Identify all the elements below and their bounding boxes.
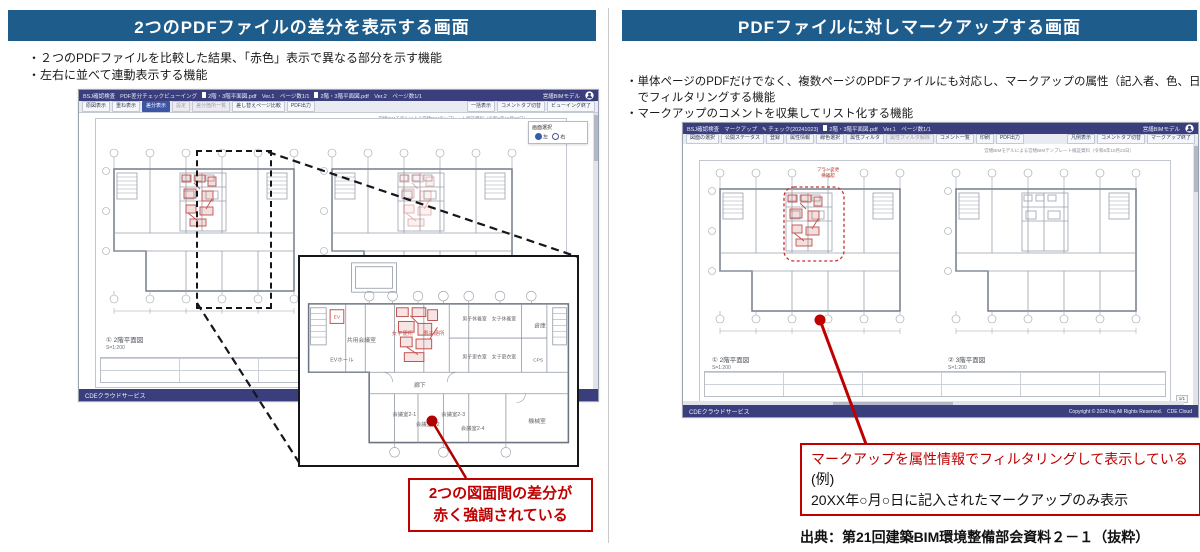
left-section-title: 2つのPDFファイルの差分を表示する画面 [134,13,469,38]
room-label: 男子便所 [423,329,445,337]
toolbar-button[interactable]: 属性フィルタ [846,134,884,144]
floor-plan-3f [944,163,1144,353]
plan-caption: ② 3階平面図 S=1:200 [948,357,985,371]
toolbar-button[interactable]: コメント一覧 [936,134,974,144]
room-label: 会議室2-3 [441,410,465,418]
zoom-inset: EV 共用会議室 女子便所 男子便所 男子休養室 女子休養室 倉庫 EVホール … [298,255,579,467]
toolbar-button[interactable]: 一括表示 [467,101,495,112]
screen-selector-panel: 画面選択 左 右 [528,121,588,144]
right-section-header: PDFファイルに対しマークアップする画面 [622,10,1197,41]
document-tab-2[interactable]: 2階・3階平面図.pdf Ver.2 ページ数1/1 [314,92,421,100]
app-brand: BSJ確認検査 [83,92,115,100]
canvas-note: 営繕BIMモデルによる営繕BIMテンプレート検証資料（令和6年10月23日） [984,148,1134,154]
diff-callout-line2: 赤く強調されている [433,505,568,528]
left-bullet-2: ・左右に並べて連動表示する機能 [28,67,442,84]
inset-floor-plan: EV 共用会議室 女子便所 男子便所 男子休養室 女子休養室 倉庫 EVホール … [300,257,577,465]
toolbar-button[interactable]: 原図表示 [82,101,110,112]
toolbar-button[interactable]: 属性情報 [786,134,814,144]
room-label: 会議室2-1 [392,410,416,418]
source-citation: 出典：第21回建築BIM環境整備部会資料２－１（抜粋） [800,527,1149,547]
drawing-sheet: プラン変更 要確認 ① 2階平面図 S=1:200 ② 3階平面図 S=1:20… [699,160,1171,402]
room-label: 女子休養室 [492,315,516,322]
toolbar-button-diff-active[interactable]: 差分表示 [142,101,170,112]
footer-copyright: Copyright © 2024 bsj All Rights Reserved… [1069,408,1192,415]
toolbar-button[interactable]: 設定 [172,101,190,112]
room-label: 男子休養室 [462,315,486,322]
room-label: 女子便所 [392,329,414,337]
app-name: PDF差分チェックビューイング [120,92,197,100]
room-label: CPS [533,357,544,363]
right-section-title: PDFファイルに対しマークアップする画面 [738,13,1081,38]
right-bullets: ・単体ページのPDFだけでなく、複数ページのPDFファイルにも対応し、マークアッ… [626,74,1200,122]
document-tab-1[interactable]: 2階・3階平面図.pdf Ver.1 ページ数1/1 [202,92,309,100]
user-icon[interactable] [585,91,594,100]
toolbar-button[interactable]: PDF出力 [996,134,1024,144]
room-label: 女子更衣室 [492,354,516,361]
floor-plan-2f [708,163,908,353]
toolbar-button[interactable]: 印刷 [976,134,994,144]
markup-cloud-note: プラン変更 要確認 [796,167,860,178]
room-label: 共用会議室 [347,336,376,344]
toolbar-button[interactable]: 線色選択 [816,134,844,144]
right-bullet-1b: でフィルタリングする機能 [626,90,1200,106]
markup-titlebar: BSJ確認検査 マークアップ ✎ チェック(20241023) 2階・3階平面図… [683,123,1198,134]
left-bullets: ・２つのPDFファイルを比較した結果、「赤色」表示で異なる部分を示す機能 ・左右… [28,50,442,84]
diff-callout-label: 2つの図面間の差分が 赤く強調されている [408,478,593,532]
user-icon[interactable] [1185,124,1194,133]
markup-callout-line2: (例) [811,469,1190,489]
app-name: マークアップ [724,125,757,133]
toolbar-button[interactable]: 図面の選択 [686,134,719,144]
toolbar-button[interactable]: 公開ステータス [721,134,764,144]
model-name: 営繕BIMモデル [543,92,580,100]
markup-session[interactable]: ✎ チェック(20241023) [762,125,818,133]
document-icon [314,92,318,98]
room-label: 会議室2-2 [416,420,440,428]
markup-callout-line1: マークアップを属性情報でフィルタリングして表示している [811,449,1190,469]
toolbar-button[interactable]: 属性フィルタ解除 [886,134,934,144]
vertical-scrollbar[interactable] [593,113,598,389]
document-icon [202,92,206,98]
app-brand: BSJ確認検査 [687,125,719,133]
room-label: 会議室2-4 [461,424,485,432]
right-bullet-1: ・単体ページのPDFだけでなく、複数ページのPDFファイルにも対応し、マークアッ… [626,74,1200,90]
plan-caption: ① 2階平面図 S=1:200 [106,337,143,351]
diff-viewer-toolbar: 原図表示 重ね表示 差分表示 設定 差分箇所一覧 差し替えページ比較 PDF出力… [79,101,598,113]
slide: 2つのPDFファイルの差分を表示する画面 ・２つのPDFファイルを比較した結果、… [0,0,1200,552]
toolbar-button[interactable]: マークアップ終了 [1147,134,1195,144]
room-label: 機械室 [528,417,546,425]
diff-callout-line1: 2つの図面間の差分が [429,483,572,506]
toolbar-button[interactable]: 差分箇所一覧 [192,101,230,112]
left-section-header: 2つのPDFファイルの差分を表示する画面 [8,10,596,41]
footer-service-name: CDEクラウドサービス [689,407,750,416]
room-label: EVホール [330,356,354,363]
toolbar-button[interactable]: 差し替えページ比較 [232,101,285,112]
room-label: 男子更衣室 [462,354,486,361]
radio-right[interactable] [552,133,559,140]
right-bullet-2: ・マークアップのコメントを収集してリスト化する機能 [626,106,1200,122]
markup-canvas: 営繕BIMモデルによる営繕BIMテンプレート検証資料（令和6年10月23日） プ… [683,144,1198,405]
footer-service-name: CDEクラウドサービス [85,391,146,400]
room-label: EV [334,315,341,321]
toolbar-button[interactable]: 重ね表示 [112,101,140,112]
markup-callout-line3: 20XX年○月○日に記入されたマークアップのみ表示 [811,490,1190,510]
left-bullet-1: ・２つのPDFファイルを比較した結果、「赤色」表示で異なる部分を示す機能 [28,50,442,67]
toolbar-button[interactable]: コメントタブ切替 [1097,134,1145,144]
toolbar-button[interactable]: 登録 [766,134,784,144]
vertical-scrollbar[interactable] [1193,144,1198,405]
toolbar-button[interactable]: 凡例表示 [1067,134,1095,144]
model-name: 営繕BIMモデル [1143,125,1180,133]
radio-left[interactable] [535,133,542,140]
room-label: 倉庫 [534,321,546,329]
room-label: 廊下 [414,381,426,389]
markup-window: BSJ確認検査 マークアップ ✎ チェック(20241023) 2階・3階平面図… [682,122,1199,418]
diff-viewer-titlebar: BSJ確認検査 PDF差分チェックビューイング 2階・3階平面図.pdf Ver… [79,90,598,101]
panel-divider [608,8,609,543]
screen-selector-label: 画面選択 [532,124,584,131]
document-tab-1[interactable]: 2階・3階平面図.pdf Ver.1 ページ数1/1 [823,125,930,133]
zoom-region-rect [196,150,272,309]
markup-callout-box: マークアップを属性情報でフィルタリングして表示している (例) 20XX年○月○… [800,443,1200,516]
document-icon [823,125,827,131]
plan-caption: ① 2階平面図 S=1:200 [712,357,749,371]
toolbar-button[interactable]: コメントタブ切替 [497,101,545,112]
diff-highlights [330,308,437,362]
markup-footer: CDEクラウドサービス Copyright © 2024 bsj All Rig… [683,405,1198,417]
toolbar-button[interactable]: ビューイング終了 [547,101,595,112]
toolbar-button[interactable]: PDF出力 [287,101,315,112]
title-block [704,371,1166,397]
